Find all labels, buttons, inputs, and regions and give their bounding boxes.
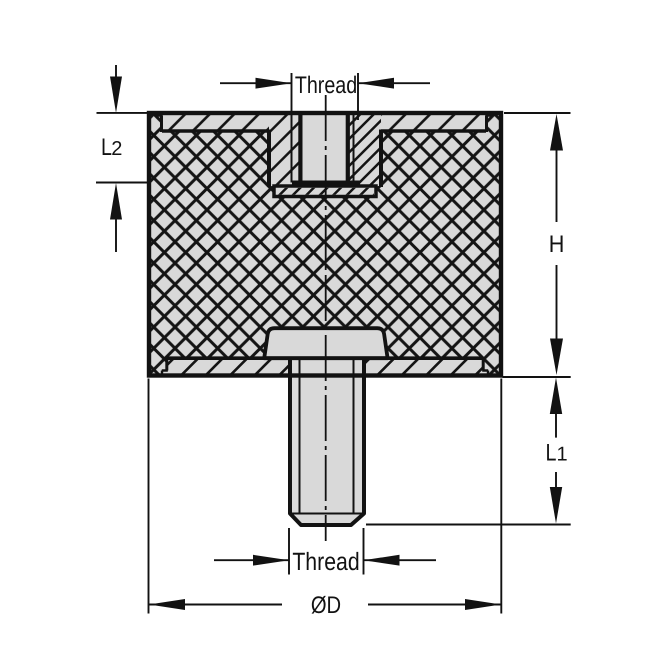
svg-text:1: 1 xyxy=(557,444,568,466)
svg-text:ØD: ØD xyxy=(311,592,341,619)
svg-text:Thread: Thread xyxy=(295,72,357,99)
svg-text:2: 2 xyxy=(111,138,122,160)
svg-text:L: L xyxy=(546,440,557,467)
svg-text:L: L xyxy=(101,134,112,161)
svg-text:Thread: Thread xyxy=(292,548,359,576)
svg-text:H: H xyxy=(549,231,565,258)
